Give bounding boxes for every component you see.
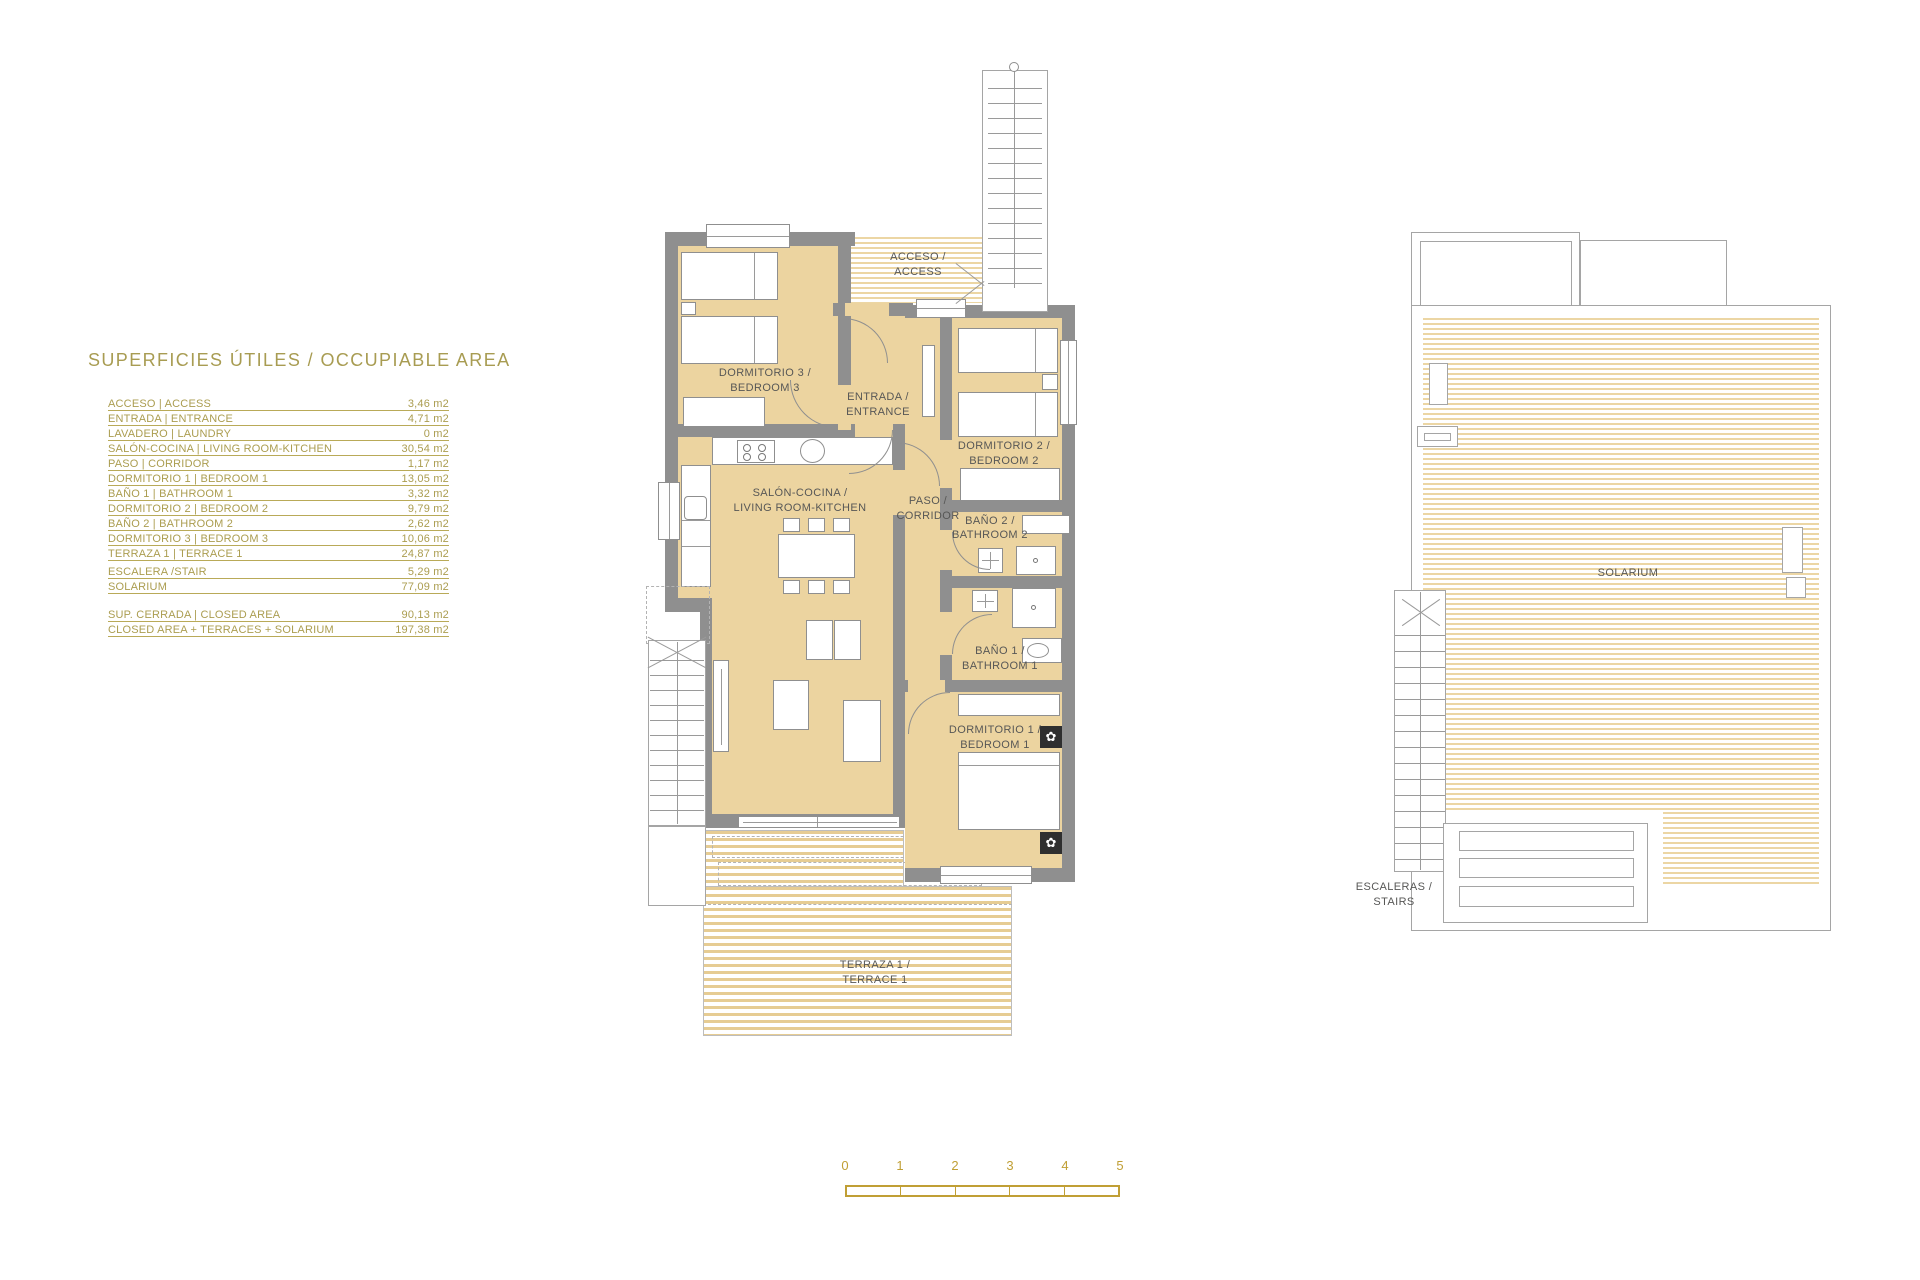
row-label: BAÑO 2 | BATHROOM 2: [108, 518, 233, 530]
door-opening: [940, 530, 952, 570]
row-label: ENTRADA | ENTRANCE: [108, 413, 233, 425]
row-label: SUP. CERRADA | CLOSED AREA: [108, 609, 280, 621]
scale-segment: [901, 1187, 955, 1195]
area-table: ACCESO | ACCESS3,46 m2 ENTRADA | ENTRANC…: [108, 396, 449, 637]
plant-icon: ✿: [1046, 729, 1057, 744]
row-value: 3,32 m2: [400, 488, 449, 500]
dining-table: [778, 534, 855, 578]
roof-planter: [1459, 858, 1634, 878]
room-label-terraza: TERRAZA 1 /TERRACE 1: [840, 958, 910, 988]
row-value: 90,13 m2: [394, 609, 449, 621]
row-label: SOLARIUM: [108, 581, 167, 593]
row-label: BAÑO 1 | BATHROOM 1: [108, 488, 233, 500]
nightstand: [681, 302, 696, 315]
room-label-dormitorio3: DORMITORIO 3 /BEDROOM 3: [719, 366, 811, 396]
stair-outline-dashed: [646, 586, 710, 644]
bed: [681, 252, 778, 300]
door-opening: [845, 303, 889, 316]
roof-top-box-inner: [1420, 241, 1572, 306]
floorplan-sheet: SUPERFICIES ÚTILES / OCCUPIABLE AREA ACC…: [0, 0, 1920, 1280]
table-row: DORMITORIO 2 | BEDROOM 29,79 m2: [108, 501, 449, 516]
row-label: DORMITORIO 3 | BEDROOM 3: [108, 533, 268, 545]
table-row: SOLARIUM77,09 m2: [108, 579, 449, 594]
burner-icon: [758, 453, 766, 461]
stair-centerline: [677, 642, 678, 824]
roof-marker: [1786, 577, 1806, 598]
scale-segment: [1065, 1187, 1118, 1195]
row-value: 2,62 m2: [400, 518, 449, 530]
bed: [681, 316, 778, 364]
roof-marker-inner: [1424, 433, 1451, 441]
scale-tick: 3: [1006, 1158, 1013, 1173]
room-label-salon: SALÓN-COCINA /LIVING ROOM-KITCHEN: [734, 486, 867, 516]
table-row: LAVADERO | LAUNDRY0 m2: [108, 426, 449, 441]
solarium-deck: [1423, 318, 1819, 812]
row-label: TERRAZA 1 | TERRACE 1: [108, 548, 243, 560]
table-row: BAÑO 1 | BATHROOM 13,32 m2: [108, 486, 449, 501]
room-label-dormitorio1: DORMITORIO 1 /BEDROOM 1: [949, 723, 1041, 753]
bed: [958, 328, 1058, 373]
row-value: 1,17 m2: [400, 458, 449, 470]
wall: [952, 500, 1062, 512]
plant-icon: ✿: [1046, 835, 1057, 850]
wall: [952, 576, 1062, 588]
scale-tick: 2: [951, 1158, 958, 1173]
page-title: SUPERFICIES ÚTILES / OCCUPIABLE AREA: [88, 350, 511, 371]
row-value: 4,71 m2: [400, 413, 449, 425]
window: [940, 866, 1032, 884]
kitchen-sink: [800, 439, 825, 463]
wardrobe: [958, 694, 1060, 716]
scale-bar: [845, 1185, 1120, 1197]
room-label-solarium: SOLARIUM: [1598, 566, 1659, 581]
coffee-table: [773, 680, 809, 730]
bed: [958, 752, 1060, 830]
pergola-line: [703, 904, 1012, 905]
scale-segment: [847, 1187, 901, 1195]
row-label: LAVADERO | LAUNDRY: [108, 428, 231, 440]
table-row: BAÑO 2 | BATHROOM 22,62 m2: [108, 516, 449, 531]
row-label: CLOSED AREA + TERRACES + SOLARIUM: [108, 624, 334, 636]
row-value: 9,79 m2: [400, 503, 449, 515]
chair: [833, 580, 850, 594]
chair: [833, 518, 850, 532]
scale-tick: 1: [896, 1158, 903, 1173]
sofa: [843, 700, 881, 762]
sliding-door: [738, 816, 900, 828]
window: [658, 482, 680, 540]
row-value: 13,05 m2: [394, 473, 449, 485]
window: [706, 224, 790, 248]
table-row: ACCESO | ACCESS3,46 m2: [108, 396, 449, 411]
roof-planter: [1459, 831, 1634, 851]
row-label: PASO | CORRIDOR: [108, 458, 210, 470]
stair-centerline: [1014, 70, 1015, 288]
bathtub: [1022, 515, 1070, 534]
sofa: [806, 620, 833, 660]
chair: [783, 580, 800, 594]
nightstand-dark: ✿: [1040, 832, 1062, 854]
stove: [737, 440, 775, 463]
burner-icon: [743, 444, 751, 452]
row-label: ACCESO | ACCESS: [108, 398, 211, 410]
room-label-escaleras: ESCALERAS /STAIRS: [1356, 880, 1433, 910]
roof-marker: [1429, 363, 1448, 405]
closet: [922, 345, 935, 417]
row-value: 77,09 m2: [394, 581, 449, 593]
table-row: TERRAZA 1 | TERRACE 124,87 m2: [108, 546, 449, 561]
table-row-summary: SUP. CERRADA | CLOSED AREA90,13 m2: [108, 607, 449, 622]
room-label-paso: PASO /CORRIDOR: [896, 494, 959, 524]
solarium-deck-extension: [1663, 812, 1819, 884]
roof-top-box: [1580, 240, 1727, 306]
row-value: 30,54 m2: [394, 443, 449, 455]
table-row: DORMITORIO 3 | BEDROOM 310,06 m2: [108, 531, 449, 546]
wardrobe: [683, 397, 765, 427]
stair-landing: [648, 826, 706, 906]
burner-icon: [758, 444, 766, 452]
sink: [684, 496, 707, 520]
bed: [958, 392, 1058, 437]
table-row-summary: CLOSED AREA + TERRACES + SOLARIUM197,38 …: [108, 622, 449, 637]
scale-segment: [1010, 1187, 1064, 1195]
row-label: ESCALERA /STAIR: [108, 566, 207, 578]
room-label-entrada: ENTRADA /ENTRANCE: [846, 390, 910, 420]
table-row: ENTRADA | ENTRANCE4,71 m2: [108, 411, 449, 426]
stair-treads: [988, 88, 1042, 288]
shower: [1016, 546, 1056, 575]
wardrobe: [960, 468, 1060, 501]
row-value: 5,29 m2: [400, 566, 449, 578]
roof-marker: [1782, 527, 1803, 573]
tv-sideboard: [713, 660, 729, 752]
row-label: DORMITORIO 2 | BEDROOM 2: [108, 503, 268, 515]
window: [1060, 340, 1077, 425]
door-opening: [940, 440, 952, 488]
chair: [783, 518, 800, 532]
row-value: 24,87 m2: [394, 548, 449, 560]
room-label-dormitorio2: DORMITORIO 2 /BEDROOM 2: [958, 439, 1050, 469]
shower: [1012, 588, 1056, 628]
roof-planter: [1459, 886, 1634, 907]
nightstand-dark: ✿: [1040, 726, 1062, 748]
wall: [665, 232, 678, 612]
row-value: 3,46 m2: [400, 398, 449, 410]
stair-centerline: [1420, 592, 1421, 870]
burner-icon: [743, 453, 751, 461]
scale-segment: [956, 1187, 1010, 1195]
door-opening: [908, 680, 945, 692]
table-row: PASO | CORRIDOR1,17 m2: [108, 456, 449, 471]
room-label-acceso: ACCESO /ACCESS: [890, 250, 946, 280]
sofa: [834, 620, 861, 660]
scale-tick: 0: [841, 1158, 848, 1173]
washbasin: [972, 590, 998, 612]
row-value: 197,38 m2: [387, 624, 449, 636]
kitchen-cabinet-column: [681, 465, 711, 587]
row-value: 10,06 m2: [394, 533, 449, 545]
row-label: SALÓN-COCINA | LIVING ROOM-KITCHEN: [108, 443, 332, 455]
row-label: DORMITORIO 1 | BEDROOM 1: [108, 473, 268, 485]
scale-tick: 4: [1061, 1158, 1068, 1173]
room-label-bano1: BAÑO 1 /BATHROOM 1: [962, 644, 1038, 674]
chair: [808, 580, 825, 594]
table-row: ESCALERA /STAIR5,29 m2: [108, 564, 449, 579]
scale-tick: 5: [1116, 1158, 1123, 1173]
table-row: SALÓN-COCINA | LIVING ROOM-KITCHEN30,54 …: [108, 441, 449, 456]
nightstand: [1042, 374, 1058, 390]
chair: [808, 518, 825, 532]
room-label-bano2: BAÑO 2 /BATHROOM 2: [952, 514, 1028, 542]
table-row: DORMITORIO 1 | BEDROOM 113,05 m2: [108, 471, 449, 486]
stair-start-marker: [1009, 62, 1019, 72]
door-opening: [940, 612, 952, 655]
row-value: 0 m2: [416, 428, 449, 440]
